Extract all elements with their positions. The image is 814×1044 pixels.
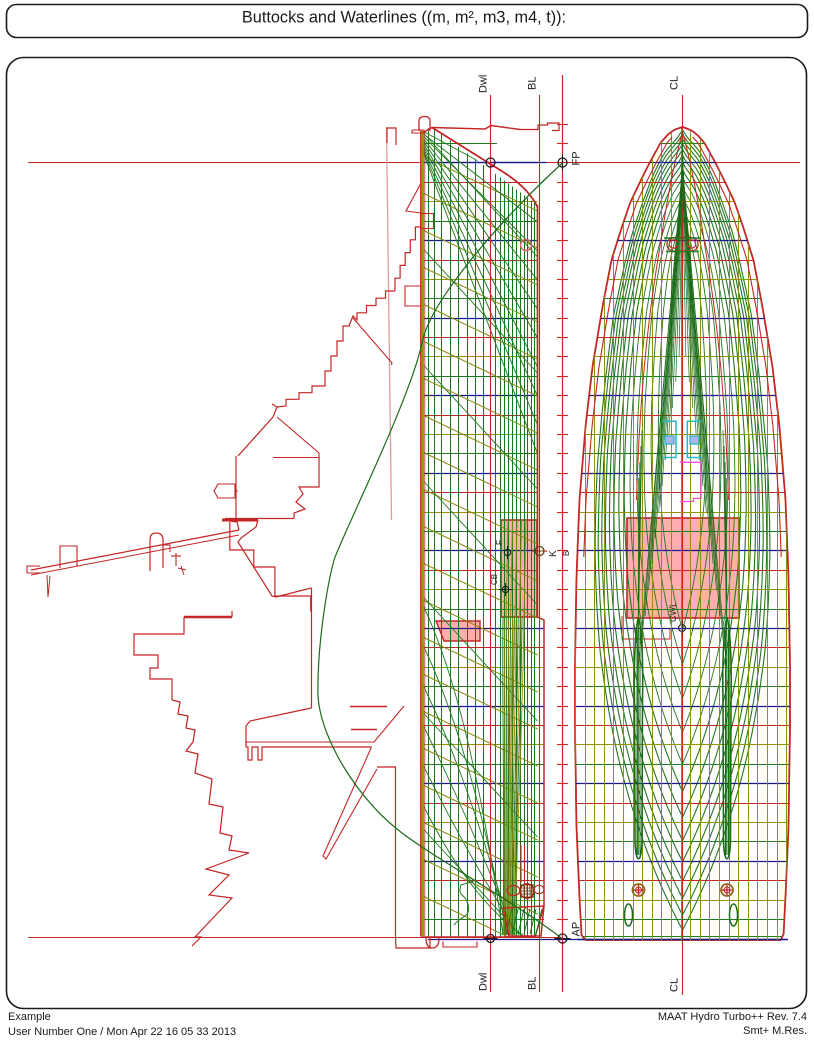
svg-text:CB: CB bbox=[490, 574, 499, 585]
svg-text:CL: CL bbox=[669, 76, 681, 90]
svg-text:Smt+ M.Res.: Smt+ M.Res. bbox=[743, 1025, 807, 1037]
svg-text:FP: FP bbox=[571, 151, 583, 165]
svg-text:Buttocks and Waterlines ((m, m: Buttocks and Waterlines ((m, m², m3, m4,… bbox=[242, 9, 566, 27]
svg-text:B: B bbox=[562, 551, 571, 556]
svg-text:F: F bbox=[495, 540, 504, 545]
svg-text:BL: BL bbox=[527, 77, 539, 90]
svg-text:User Number One / Mon Apr 22 1: User Number One / Mon Apr 22 16 05 33 20… bbox=[8, 1026, 236, 1038]
svg-text:CL: CL bbox=[669, 978, 681, 992]
svg-text:MAAT Hydro Turbo++ Rev. 7.4: MAAT Hydro Turbo++ Rev. 7.4 bbox=[658, 1011, 807, 1023]
svg-text:Dwl: Dwl bbox=[478, 973, 490, 991]
svg-text:BL: BL bbox=[527, 977, 539, 990]
svg-text:Example: Example bbox=[8, 1011, 51, 1023]
svg-text:Dwl: Dwl bbox=[478, 75, 490, 93]
svg-text:K: K bbox=[548, 550, 559, 557]
